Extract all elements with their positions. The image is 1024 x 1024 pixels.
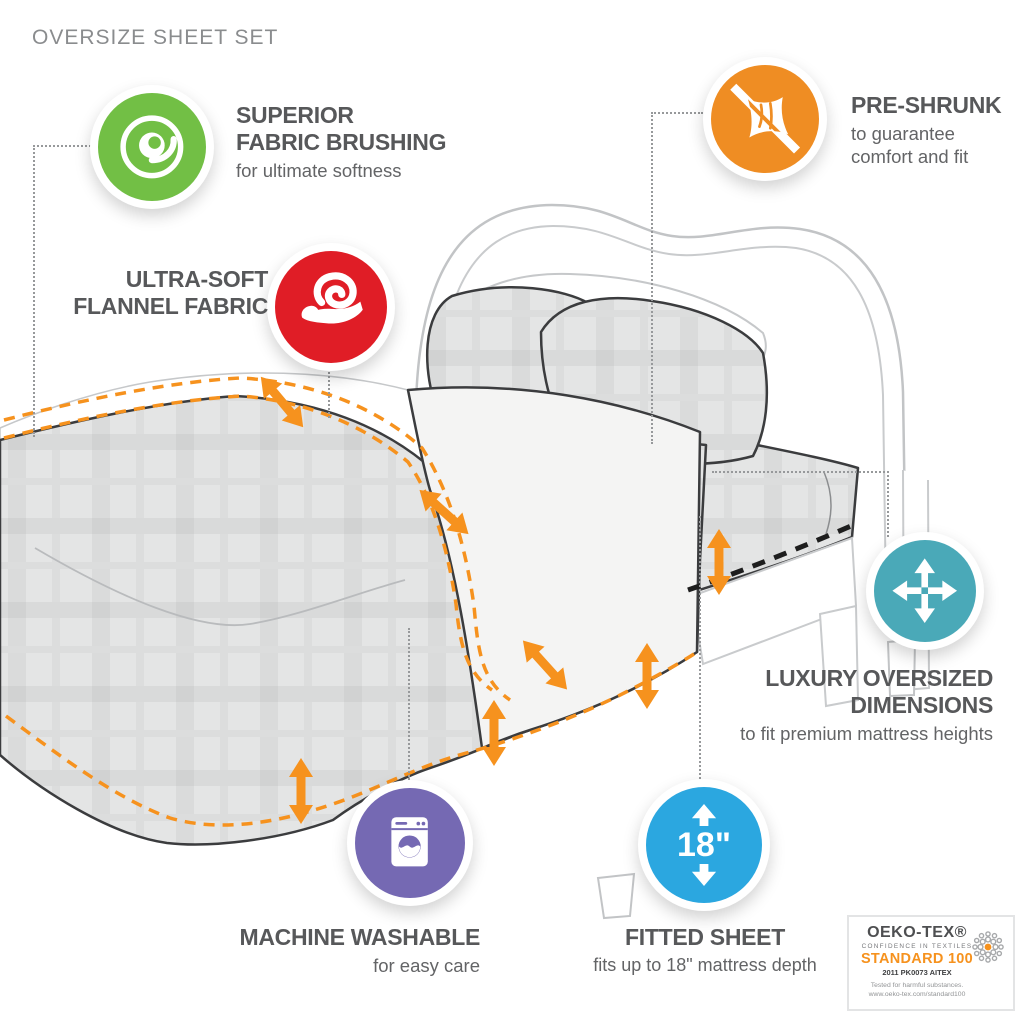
cert-note: Tested for harmful substances.: [853, 982, 981, 991]
connector-preshrunk-v: [651, 112, 653, 444]
feature-title-line: ULTRA-SOFT: [20, 266, 268, 293]
infographic-page: { "page": { "title": "OVERSIZE SHEET SET…: [0, 0, 1024, 1024]
cert-brand: OEKO-TEX®: [853, 924, 981, 942]
feature-title-line: PRE-SHRUNK: [851, 92, 1001, 119]
pre-shrunk-text: PRE-SHRUNK to guarantee comfort and fit: [851, 92, 1001, 168]
washing-machine-icon: [370, 803, 449, 882]
cert-url: www.oeko-tex.com/standard100: [853, 991, 981, 1000]
superior-fabric-brushing-badge: [90, 85, 214, 209]
feature-subtitle: for easy care: [192, 954, 480, 977]
machine-washable-text: MACHINE WASHABLE for easy care: [192, 924, 480, 977]
cert-tagline: CONFIDENCE IN TEXTILES: [853, 943, 981, 950]
fitted-sheet-badge: 18": [638, 779, 770, 911]
superior-fabric-brushing-text: SUPERIOR FABRIC BRUSHING for ultimate so…: [236, 102, 446, 182]
expand-arrows-icon: [888, 554, 961, 627]
page-title: OVERSIZE SHEET SET: [32, 26, 278, 50]
luxury-dimensions-badge: [866, 532, 984, 650]
connector-dimensions-v: [887, 471, 889, 537]
hand-fabric-icon: [291, 267, 372, 348]
connector-brushing-h: [33, 145, 91, 147]
feature-title-line: LUXURY OVERSIZED: [660, 665, 993, 692]
bed-leg-front: [598, 874, 634, 918]
luxury-dimensions-text: LUXURY OVERSIZED DIMENSIONS to fit premi…: [660, 665, 993, 745]
arrow-up-icon: [691, 804, 717, 826]
feature-title-line: SUPERIOR: [236, 102, 446, 129]
feature-subtitle: comfort and fit: [851, 145, 1001, 168]
feature-title-line: FLANNEL FABRIC: [20, 293, 268, 320]
oeko-flower-icon: [968, 929, 1008, 969]
feature-title-line: FITTED SHEET: [575, 924, 835, 951]
mattress-depth-value: 18": [677, 828, 731, 862]
pre-shrunk-badge: [703, 57, 827, 181]
feature-title-line: DIMENSIONS: [660, 692, 993, 719]
oeko-tex-certification-badge: OEKO-TEX® CONFIDENCE IN TEXTILES STANDAR…: [847, 915, 1015, 1011]
feature-subtitle: to fit premium mattress heights: [660, 722, 993, 745]
ultra-soft-flannel-badge: [267, 243, 395, 371]
no-shrink-icon: [726, 80, 804, 158]
connector-preshrunk-h: [651, 112, 703, 114]
machine-washable-badge: [347, 780, 473, 906]
feature-title-line: MACHINE WASHABLE: [192, 924, 480, 951]
cert-standard: STANDARD 100: [853, 951, 981, 967]
ultra-soft-flannel-text: ULTRA-SOFT FLANNEL FABRIC: [20, 266, 268, 320]
cert-number: 2011 PK0073 AITEX: [853, 968, 981, 977]
feature-subtitle: to guarantee: [851, 122, 1001, 145]
fitted-sheet-text: FITTED SHEET fits up to 18" mattress dep…: [575, 924, 835, 977]
connector-washable-v: [408, 628, 410, 780]
arrow-down-icon: [691, 864, 717, 886]
feature-subtitle: fits up to 18" mattress depth: [575, 954, 835, 977]
connector-flannel-v: [328, 372, 330, 418]
feature-subtitle: for ultimate softness: [236, 159, 446, 182]
swirl-icon: [113, 108, 191, 186]
feature-title-line: FABRIC BRUSHING: [236, 129, 446, 156]
connector-dimensions-h: [712, 471, 889, 473]
